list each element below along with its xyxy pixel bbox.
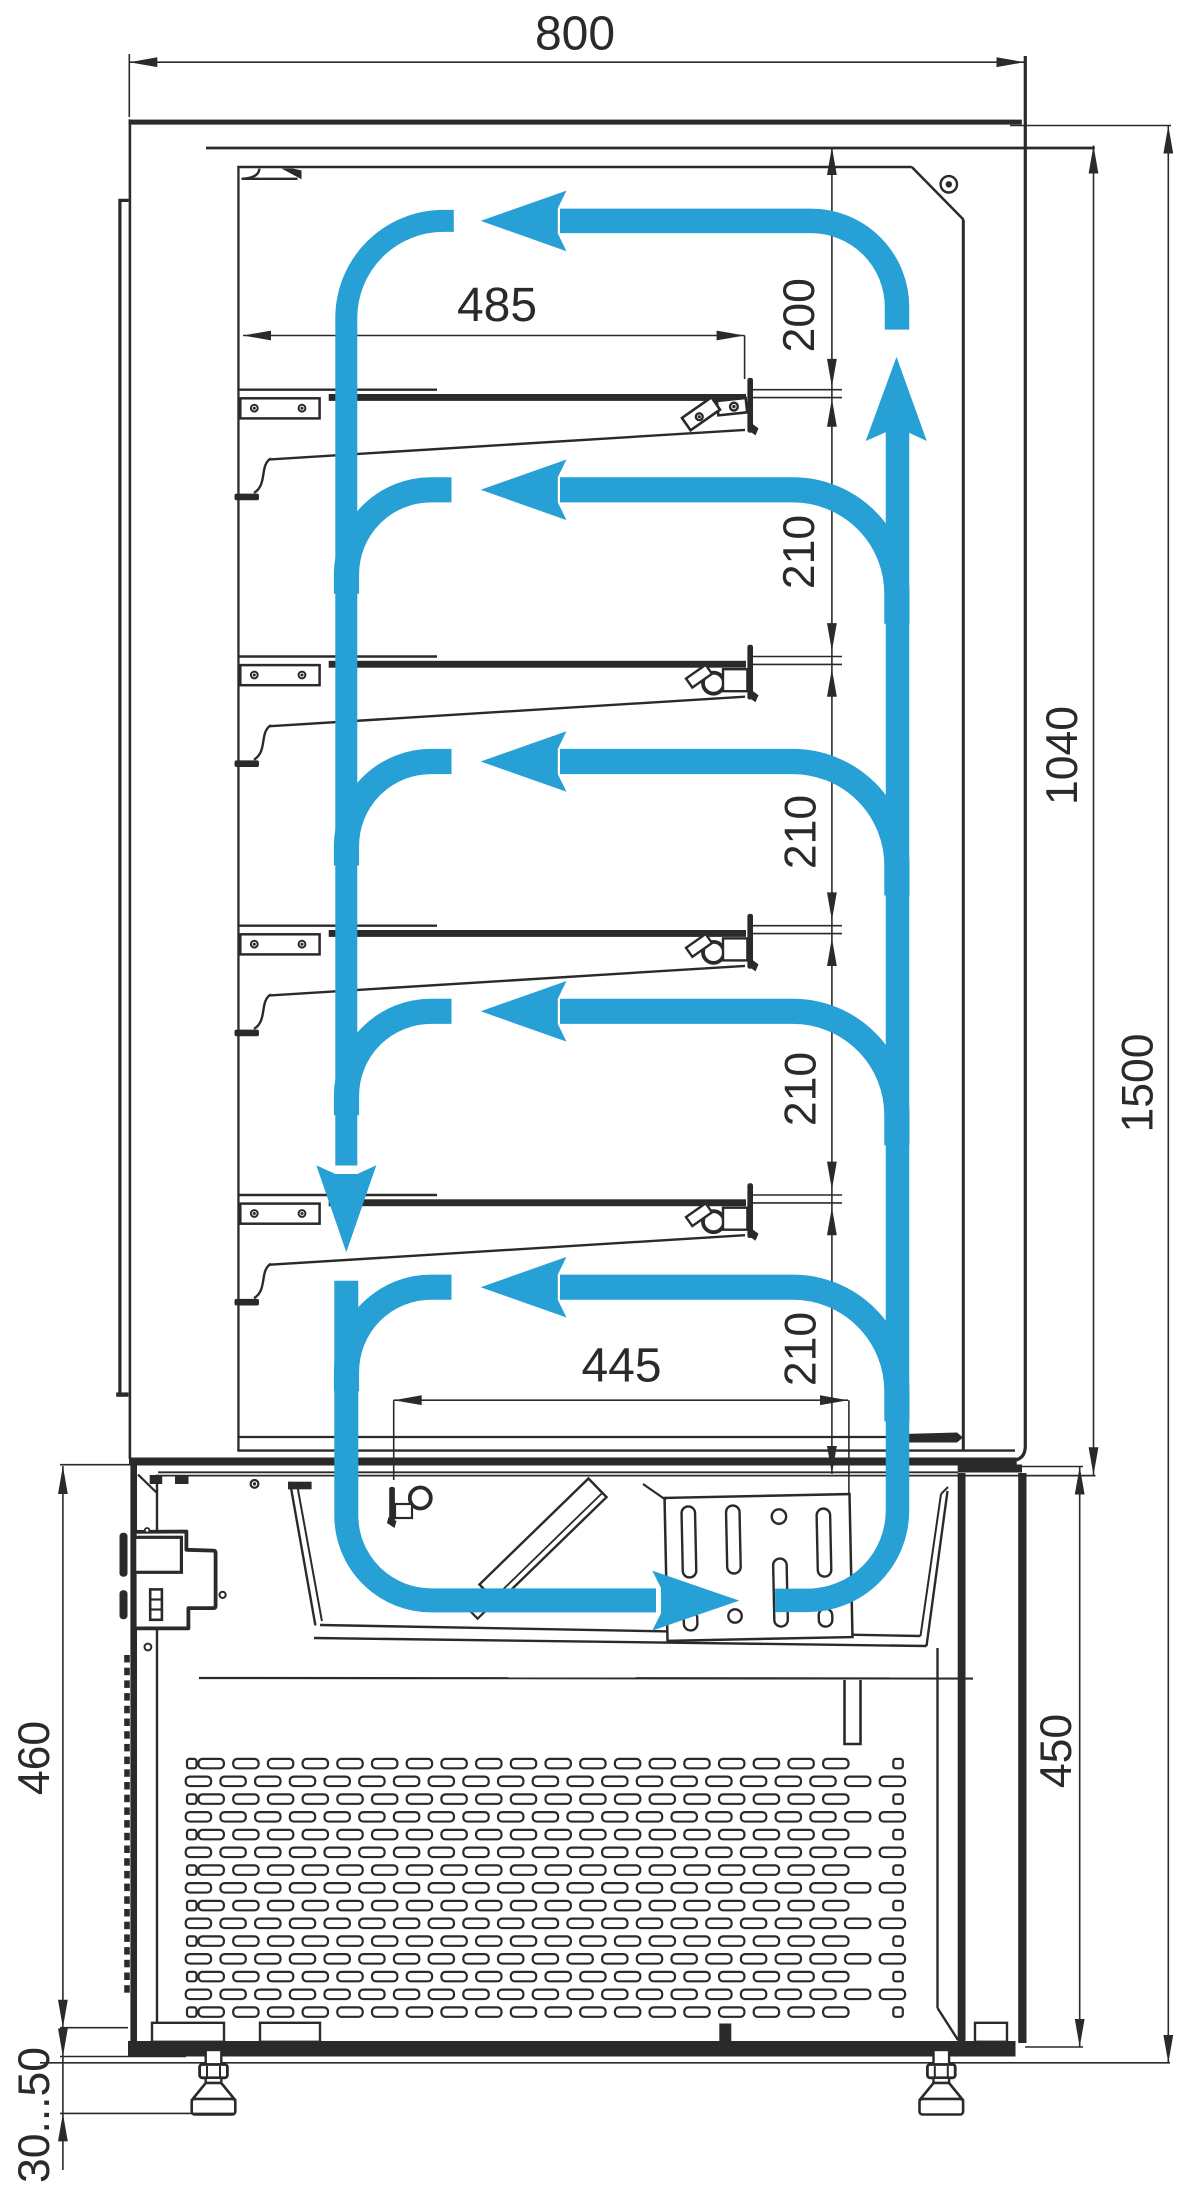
svg-text:460: 460 (10, 1721, 59, 1795)
svg-text:445: 445 (581, 1340, 661, 1393)
svg-text:1500: 1500 (1114, 1034, 1163, 1133)
svg-text:210: 210 (777, 795, 826, 869)
svg-text:200: 200 (775, 278, 824, 352)
svg-text:485: 485 (457, 279, 537, 332)
svg-text:1040: 1040 (1038, 706, 1087, 805)
svg-text:210: 210 (777, 1052, 826, 1126)
svg-text:30...50: 30...50 (10, 2047, 59, 2183)
svg-text:800: 800 (535, 8, 615, 61)
svg-text:210: 210 (777, 1312, 826, 1386)
svg-text:210: 210 (775, 515, 824, 589)
svg-text:450: 450 (1032, 1714, 1081, 1788)
